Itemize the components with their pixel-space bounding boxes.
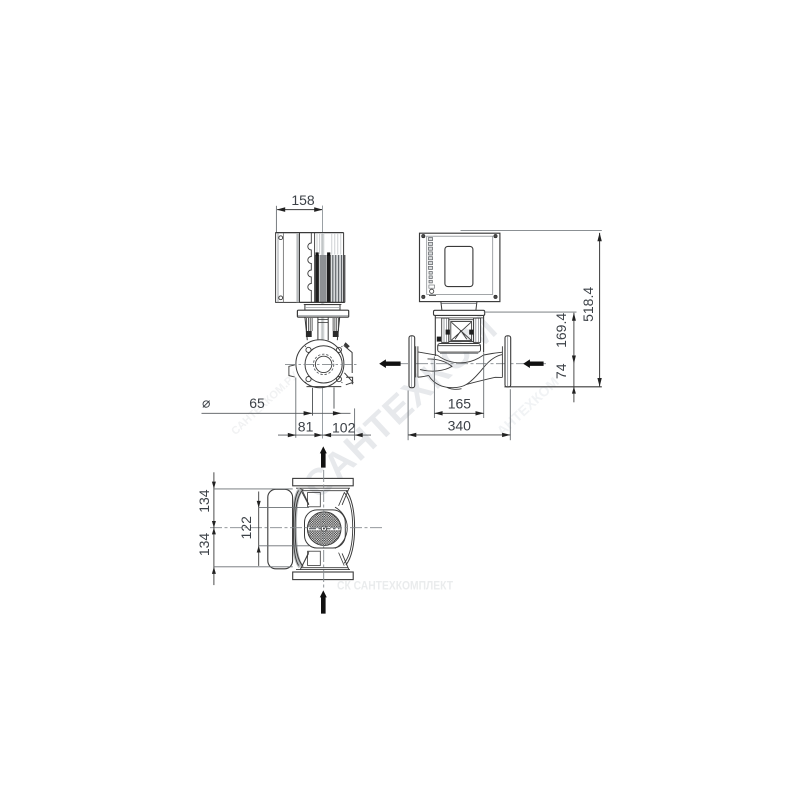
svg-text:340: 340 bbox=[448, 417, 472, 433]
svg-text:165: 165 bbox=[448, 395, 472, 411]
svg-text:102: 102 bbox=[332, 419, 356, 435]
svg-text:81: 81 bbox=[298, 419, 314, 435]
svg-text:134: 134 bbox=[196, 533, 212, 557]
svg-text:74: 74 bbox=[553, 363, 569, 379]
svg-text:⌀: ⌀ bbox=[202, 395, 210, 411]
svg-text:65: 65 bbox=[249, 395, 265, 411]
svg-text:158: 158 bbox=[291, 192, 315, 208]
svg-text:122: 122 bbox=[238, 516, 254, 540]
svg-text:518.4: 518.4 bbox=[580, 287, 596, 322]
svg-text:169.4: 169.4 bbox=[553, 313, 569, 348]
svg-text:134: 134 bbox=[196, 489, 212, 513]
svg-text:СК САНТЕХКОМПЛЕКТ: СК САНТЕХКОМПЛЕКТ bbox=[337, 579, 454, 593]
